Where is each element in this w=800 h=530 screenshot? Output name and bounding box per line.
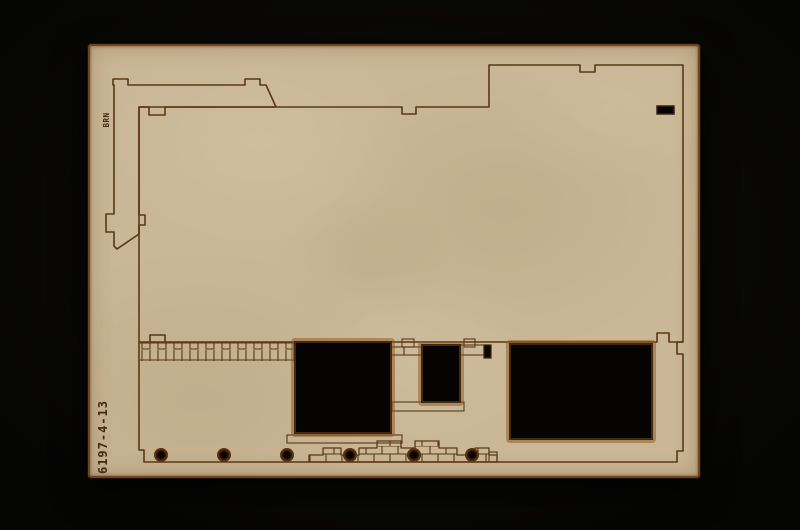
left-window-cutout — [293, 340, 393, 435]
photo-background: 6197-4-13 BRN — [0, 0, 800, 530]
mdf-sheet: 6197-4-13 BRN — [88, 44, 700, 478]
corner-trim-part-outline — [106, 79, 276, 249]
small-slot-cut — [484, 345, 491, 358]
laser-etch-drawing — [90, 46, 702, 480]
part-number-label: 6197-4-13 — [95, 395, 111, 479]
right-door-cutout — [508, 342, 654, 441]
centre-window-cutout — [420, 343, 462, 404]
corner-mark-label: BRN — [102, 105, 112, 135]
dentil-brick-course — [139, 343, 295, 361]
top-right-slot-cutout — [657, 106, 674, 114]
